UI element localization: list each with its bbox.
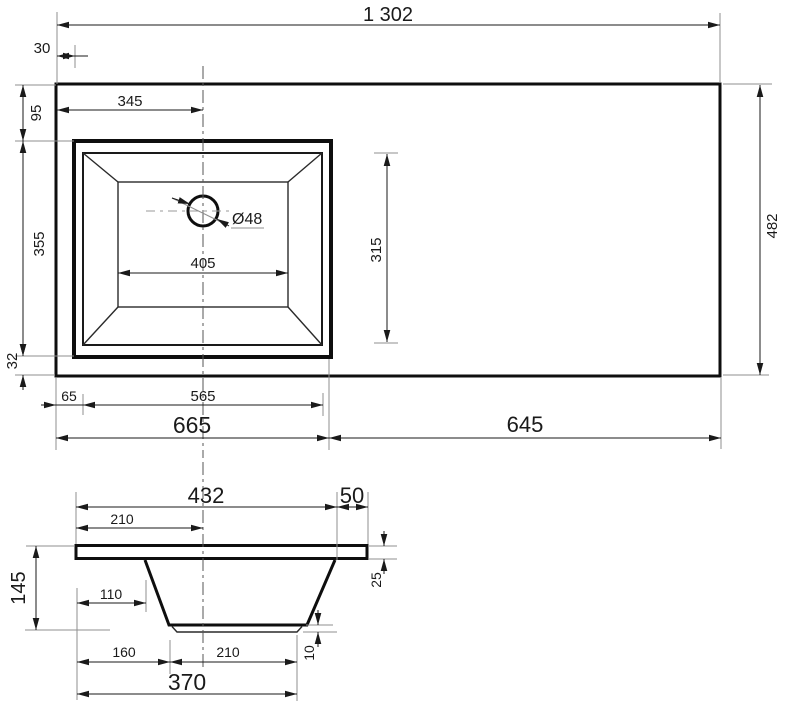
countertop-outline — [56, 84, 720, 376]
dim-label-total-width: 1 302 — [363, 4, 413, 26]
dim-label-645: 645 — [507, 412, 544, 437]
dim-label-210-upper: 210 — [110, 511, 134, 527]
dim-label-345: 345 — [117, 93, 142, 110]
dim-label-405: 405 — [190, 255, 215, 272]
dim-label-315: 315 — [368, 237, 385, 262]
technical-drawing-page: 1 302 30 345 95 355 32 482 315 65 565 66… — [0, 0, 786, 704]
dim-label-drain-diameter: Ø48 — [232, 211, 262, 228]
basin-slope-edge-topright — [288, 153, 322, 182]
basin-bottom-pad — [172, 627, 302, 633]
dim-label-offset-30: 30 — [34, 40, 51, 57]
dim-label-50: 50 — [340, 483, 364, 508]
dim-label-25: 25 — [368, 572, 384, 588]
dim-label-370: 370 — [168, 669, 206, 695]
basin-cross-section-walls — [145, 560, 335, 625]
dim-label-432: 432 — [188, 483, 225, 508]
dim-label-10: 10 — [301, 645, 317, 661]
dim-label-110: 110 — [100, 586, 123, 602]
slab-cross-section — [76, 546, 367, 559]
dim-label-145: 145 — [8, 571, 30, 604]
sink-dimension-drawing: 1 302 30 345 95 355 32 482 315 65 565 66… — [0, 0, 786, 704]
dim-label-160: 160 — [112, 644, 136, 660]
dim-label-665: 665 — [173, 412, 211, 438]
dim-label-565: 565 — [190, 388, 215, 405]
top-view: 1 302 30 345 95 355 32 482 315 65 565 66… — [4, 4, 781, 458]
drain-leader-arrow-right — [217, 219, 229, 226]
drain-leader-arrow-left — [172, 198, 190, 204]
basin-slope-edge-bottomright — [288, 307, 322, 345]
dim-label-32: 32 — [4, 353, 21, 370]
section-view: 432 50 210 145 110 25 160 210 10 370 — [8, 462, 397, 701]
basin-slope-edge-topleft — [83, 153, 118, 182]
dim-label-210-lower: 210 — [216, 644, 240, 660]
basin-slope-edge-bottomleft — [83, 307, 118, 345]
dim-label-95: 95 — [28, 105, 45, 122]
dim-label-65: 65 — [61, 388, 77, 404]
dim-label-355: 355 — [31, 231, 48, 256]
dim-label-482: 482 — [764, 213, 781, 238]
